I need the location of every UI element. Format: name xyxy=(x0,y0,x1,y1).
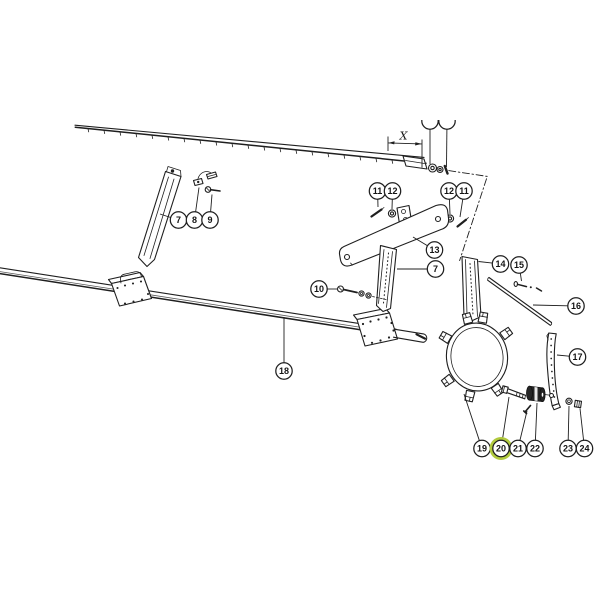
callout-leader-line xyxy=(520,273,521,281)
callout-leader-line xyxy=(211,195,212,212)
part-tine-arm-right-14 xyxy=(462,257,481,322)
callout-17[interactable]: 17 xyxy=(557,349,586,365)
callout-15[interactable]: 15 xyxy=(511,257,527,281)
callout-14[interactable]: 14 xyxy=(479,256,509,272)
exploded-parts-diagram: X xyxy=(0,0,600,600)
callout-number: 22 xyxy=(530,444,540,454)
part-screws-15 xyxy=(514,282,541,291)
callout-7[interactable]: 7 xyxy=(397,261,444,277)
callout-number: 17 xyxy=(572,352,582,362)
part-cam-strip-17 xyxy=(547,333,561,410)
callout-circle xyxy=(422,113,438,129)
callout-20-highlighted[interactable]: 20 xyxy=(490,397,513,460)
callout-9[interactable]: 9 xyxy=(202,195,218,229)
tine-tab xyxy=(478,312,488,323)
callout-leader-line xyxy=(568,406,569,440)
callout-number: 13 xyxy=(429,245,439,255)
part-upper-tine-bar xyxy=(75,125,426,165)
part-pin-11-left xyxy=(372,208,385,217)
callout-number: 15 xyxy=(514,260,524,270)
callout-10[interactable]: 10 xyxy=(311,281,337,297)
callout-18[interactable]: 18 xyxy=(276,317,292,379)
part-holder-clips-8 xyxy=(194,172,218,186)
callout-number: 7 xyxy=(433,264,438,274)
part-bar-end-bracket xyxy=(403,156,448,174)
callout-leader-line xyxy=(449,199,450,214)
callout-circle xyxy=(439,113,455,129)
part-pin-21 xyxy=(524,406,531,414)
callout-number: 19 xyxy=(477,444,487,454)
callout-edge[interactable] xyxy=(422,113,438,164)
callout-22[interactable]: 22 xyxy=(527,403,543,457)
callout-number: 11 xyxy=(373,186,383,196)
callout-number: 20 xyxy=(496,444,506,454)
callout-19[interactable]: 19 xyxy=(464,394,490,457)
callout-number: 14 xyxy=(495,259,505,269)
part-shaft-bracket-right xyxy=(354,309,398,347)
callout-leader-line xyxy=(533,305,568,306)
part-washer-12-left xyxy=(388,210,395,217)
callout-number: 11 xyxy=(459,186,469,196)
callout-leader-line xyxy=(580,409,584,441)
callout-number: 18 xyxy=(279,366,289,376)
parts-diagram-page: X xyxy=(0,0,600,600)
callout-leader-line xyxy=(196,188,199,212)
callout-number: 16 xyxy=(571,301,581,311)
part-shaft-stub-end xyxy=(394,329,427,342)
callout-leader-line xyxy=(479,262,493,264)
callout-edge[interactable] xyxy=(439,113,455,167)
callout-8[interactable]: 8 xyxy=(186,188,202,229)
callout-number: 12 xyxy=(387,186,397,196)
callout-number: 12 xyxy=(444,186,454,196)
callout-number: 23 xyxy=(563,444,573,454)
callout-number: 7 xyxy=(176,215,181,225)
part-tine-shaft-18 xyxy=(0,268,396,335)
callout-12[interactable]: 12 xyxy=(384,183,400,209)
callout-leader-line xyxy=(535,403,537,440)
callout-23[interactable]: 23 xyxy=(560,406,576,457)
part-bolt-20 xyxy=(502,386,526,399)
callout-number: 10 xyxy=(314,284,324,294)
callout-13[interactable]: 13 xyxy=(413,237,443,258)
callout-leader-line xyxy=(520,411,527,441)
callout-11[interactable]: 11 xyxy=(369,183,385,207)
part-pin-11-right xyxy=(458,218,469,227)
part-washer-23 xyxy=(566,398,572,404)
callout-number: 9 xyxy=(207,215,212,225)
callout-16[interactable]: 16 xyxy=(533,298,584,314)
callout-number: 24 xyxy=(579,444,589,454)
callout-24[interactable]: 24 xyxy=(576,409,592,457)
callout-leader-line xyxy=(460,199,463,217)
callout-number: 21 xyxy=(513,444,523,454)
part-spider-ring-19 xyxy=(439,312,513,402)
part-bolt-9 xyxy=(205,187,220,193)
callout-number: 8 xyxy=(192,215,197,225)
callout-21[interactable]: 21 xyxy=(510,411,527,457)
callout-leader-line xyxy=(502,397,509,440)
callout-11[interactable]: 11 xyxy=(456,183,472,217)
part-tine-arm-middle-7 xyxy=(377,246,397,312)
dimension-x-label: X xyxy=(399,130,409,143)
part-nut-24 xyxy=(574,400,581,407)
part-shaft-bracket-left xyxy=(109,272,152,306)
callout-leader-line xyxy=(557,355,569,356)
